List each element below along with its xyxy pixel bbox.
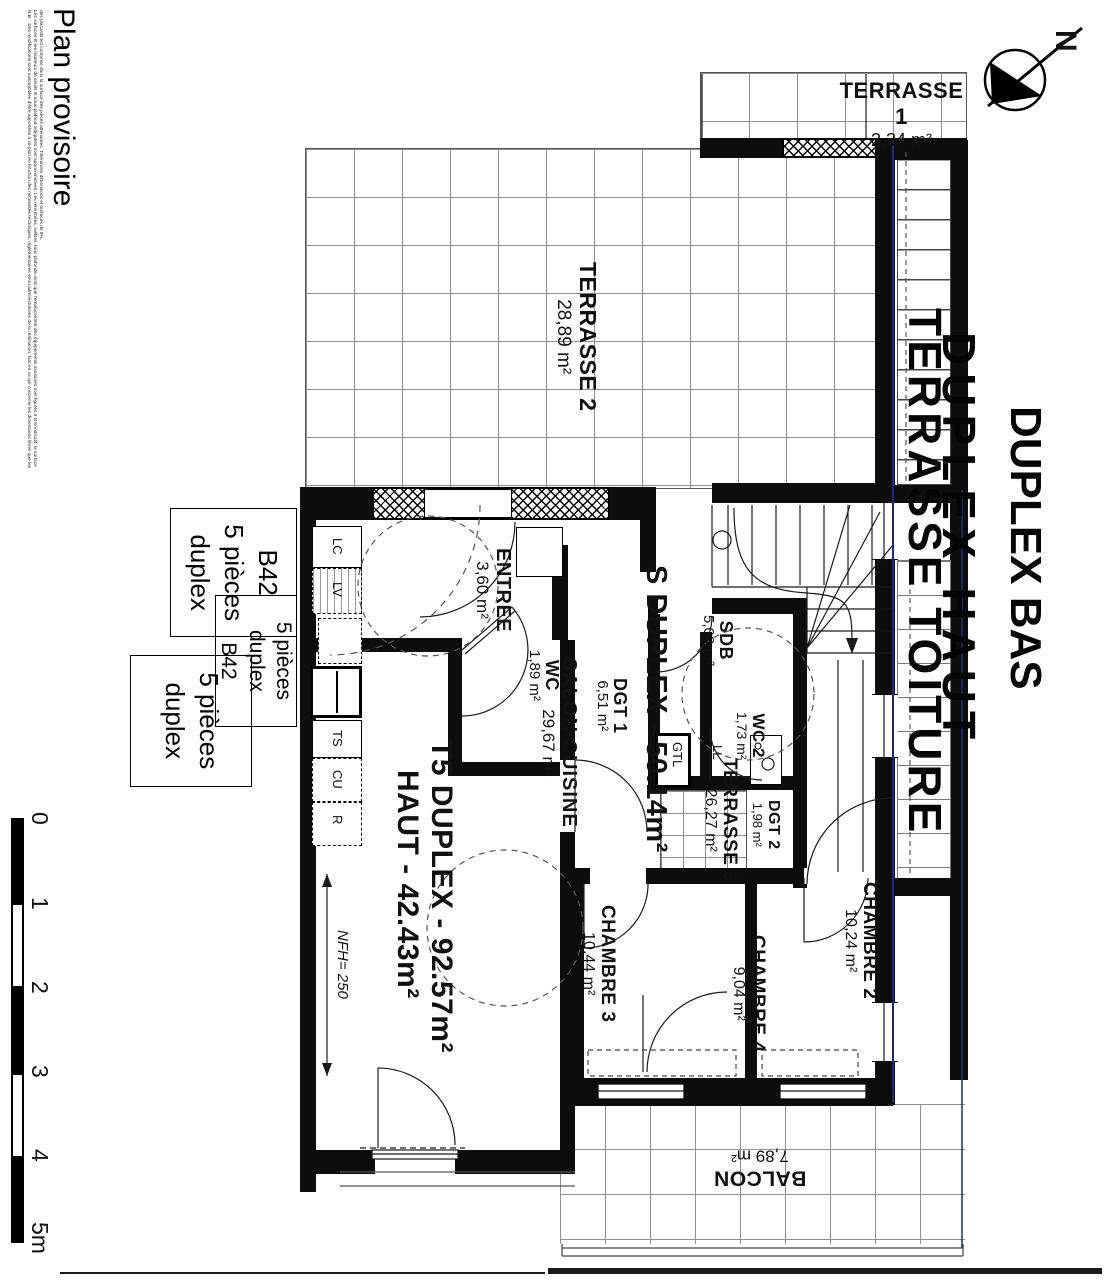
scale-tick-label: 0: [26, 812, 52, 825]
wall: [893, 878, 967, 896]
room-label-chambre2: CHAMBRE 2 10,24 m²: [841, 882, 880, 999]
area-label-duplex-bas-surface: S DUPLEX - 50.14m²: [640, 565, 672, 853]
scale-tick-label: 2: [26, 981, 52, 994]
fixture-label-ts: TS: [329, 730, 344, 747]
room-label-chambre4: CHAMBRE 4 9,04 m²: [729, 935, 768, 1052]
door-opening: [590, 868, 646, 884]
entry-closet: [516, 527, 563, 577]
compass-north-label: N: [1048, 30, 1082, 52]
fixture-label-lc: LC: [329, 538, 344, 555]
room-label-terrasse3: TERRASSE 3 26,27 m²: [701, 758, 740, 882]
disclaimer-line: Les surfaces et les hauteurs de seuils e…: [32, 10, 37, 467]
room-label-sdb: SDB 5,08 m²: [699, 615, 736, 666]
wall: [640, 487, 656, 572]
scale-tick-label: 3: [26, 1065, 52, 1078]
fixture-label-r: R: [329, 815, 344, 824]
level-label-duplex-bas: DUPLEX BAS: [1001, 406, 1050, 690]
floor-plan-sheet: N.B. : Des modifications sont susceptibl…: [0, 0, 1110, 1280]
room-label-terrasse2: TERRASSE 2 28,89 m²: [553, 262, 600, 411]
unit-kind: duplex: [157, 673, 191, 770]
disclaimer-line: des placards est comprise dans la surfac…: [38, 10, 43, 240]
scale-tick-label: 1: [26, 897, 52, 910]
fixture-label-cu: CU: [329, 770, 344, 789]
wall: [560, 1078, 893, 1106]
disclaimer-line: N.B. : Des modifications sont susceptibl…: [26, 10, 31, 468]
kitchen-sink: [310, 666, 362, 718]
unit-type: 5 pièces: [270, 622, 297, 700]
room-label-dgt1: DGT 1 6,51 m²: [593, 678, 630, 734]
fixture-label-lv: LV: [329, 582, 344, 597]
window: [872, 694, 898, 758]
area-label-t5-duplex: T5 DUPLEX - 92.57m² HAUT - 42.43m²: [391, 740, 458, 1053]
plan-status-label: Plan provisoire: [46, 8, 80, 206]
unit-type: 5 pièces: [191, 673, 225, 770]
scale-tick-label: 4: [26, 1149, 52, 1162]
room-label-wc2: WC 2 1,73 m²: [733, 712, 768, 759]
wall: [712, 483, 893, 503]
room-label-balcon: BALCON 7,89 m²: [690, 1146, 830, 1190]
level-label-duplex-haut: DUPLEX HAUT: [932, 332, 984, 747]
nfh-dimension-label: NFH= 250: [333, 930, 350, 999]
entry-door-opening: [424, 489, 512, 518]
wall: [793, 598, 807, 888]
room-label-chambre3: CHAMBRE 3 10,44 m²: [579, 905, 618, 1022]
room-label-terrasse1: TERRASSE 1 2,34 m²: [838, 78, 965, 151]
room-label-salon-cuisine: SALON CUISINE 29,67 m²: [539, 658, 580, 828]
unit-kind: duplex: [183, 524, 217, 621]
fixture-closet: [318, 618, 362, 664]
unit-label-box: 5 pièces duplex: [130, 655, 252, 787]
wall: [300, 487, 372, 520]
room-label-entree: ENTREE 3,60 m²: [473, 548, 514, 632]
wall: [700, 138, 782, 158]
wall: [300, 1150, 375, 1174]
wall: [455, 1150, 575, 1174]
scale-tick-label: 5m: [26, 1222, 52, 1254]
window: [872, 502, 898, 560]
room-label-dgt2: DGT 2 1,98 m²: [750, 800, 782, 850]
window: [872, 1002, 898, 1062]
